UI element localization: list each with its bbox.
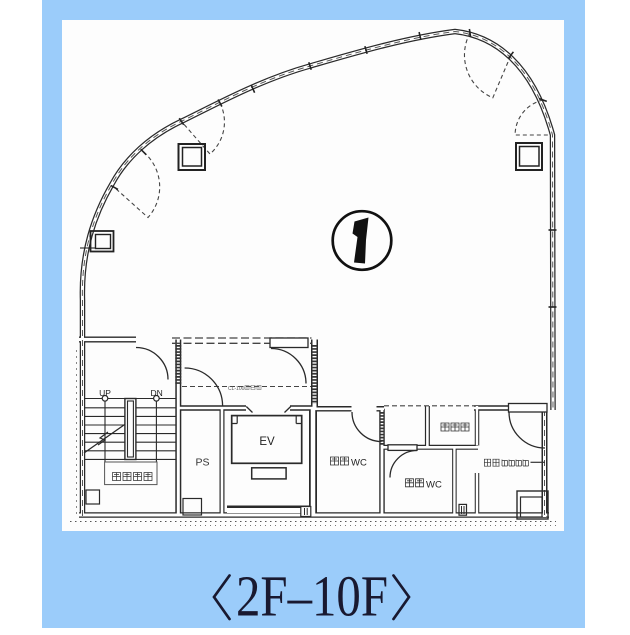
svg-text:WC: WC — [426, 479, 442, 490]
svg-text:WC: WC — [351, 458, 367, 469]
svg-text:CL-100: CL-100 — [228, 386, 245, 392]
svg-text:UP: UP — [99, 388, 111, 398]
svg-text:EV: EV — [259, 436, 275, 448]
svg-text:2F–10F: 2F–10F — [236, 564, 388, 629]
svg-text:DN: DN — [150, 388, 162, 398]
svg-text:PS: PS — [195, 457, 209, 469]
